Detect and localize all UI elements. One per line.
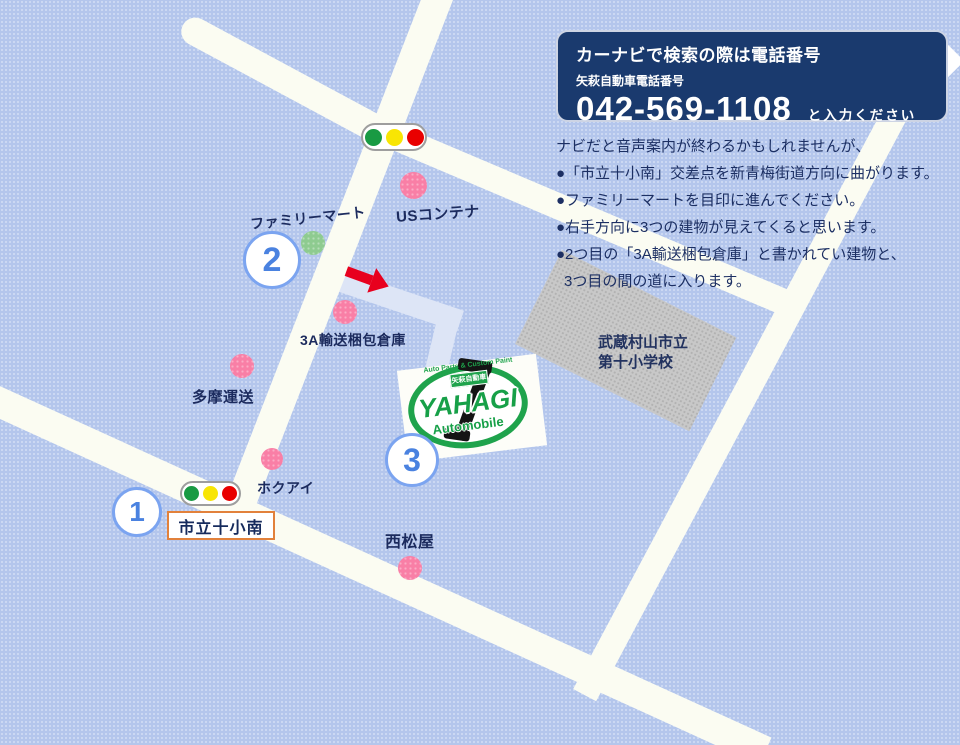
directions-line: ナビだと音声案内が終わるかもしれませんが、: [556, 133, 960, 160]
directions-line: ●右手方向に3つの建物が見えてくると思います。: [556, 214, 960, 241]
phone-suffix: と入力ください: [808, 104, 917, 124]
nishimatsuya-dot: [398, 556, 422, 580]
tama-unso-dot: [230, 354, 254, 378]
school-name-line1: 武蔵村山市立: [598, 333, 688, 353]
familymart-dot: [301, 231, 325, 255]
yellow-light-icon: [386, 129, 403, 146]
directions-text: ナビだと音声案内が終わるかもしれませんが、 ●「市立十小南」交差点を新青梅街道方…: [556, 133, 960, 295]
green-light-icon: [365, 129, 382, 146]
tama-unso-label: 多摩運送: [192, 386, 254, 407]
directions-line: ●2つ目の「3A輸送梱包倉庫」と書かれてい建物と、: [556, 241, 960, 268]
warehouse-3a-label: 3A輸送梱包倉庫: [300, 330, 406, 350]
traffic-light-top: [361, 123, 427, 151]
phone-info-box: カーナビで検索の際は電話番号 矢萩自動車電話番号 042-569-1108 と入…: [556, 30, 948, 122]
phone-box-title: カーナビで検索の際は電話番号: [576, 41, 932, 66]
green-light-icon: [184, 486, 199, 501]
us-container-dot: [400, 172, 427, 199]
traffic-light-bottom: [180, 481, 241, 506]
access-map: 武蔵村山市立 第十小学校 Auto Parts & Custom Paint 矢…: [0, 0, 960, 745]
warehouse-3a-dot: [333, 300, 357, 324]
route-marker-3: 3: [385, 433, 439, 487]
school-name-line2: 第十小学校: [598, 353, 688, 373]
directions-line: ●ファミリーマートを目印に進んでください。: [556, 187, 960, 214]
school-name-label: 武蔵村山市立 第十小学校: [598, 333, 688, 373]
route-marker-2: 2: [243, 231, 301, 289]
hokuai-label: ホクアイ: [257, 478, 314, 498]
red-light-icon: [407, 129, 424, 146]
directions-line: 3つ目の間の道に入ります。: [556, 268, 960, 295]
route-marker-1: 1: [112, 487, 162, 537]
directions-line: ●「市立十小南」交差点を新青梅街道方向に曲がります。: [556, 160, 960, 187]
yellow-light-icon: [203, 486, 218, 501]
phone-box-company: 矢萩自動車電話番号: [576, 72, 932, 89]
route-arrow-shaft: [345, 266, 374, 285]
us-container-label: USコンテナ: [395, 200, 480, 227]
phone-row: 042-569-1108 と入力ください: [576, 90, 932, 128]
intersection-sign: 市立十小南: [167, 511, 275, 540]
phone-number: 042-569-1108: [576, 90, 792, 128]
hokuai-dot: [261, 448, 283, 470]
red-light-icon: [222, 486, 237, 501]
nishimatsuya-label: 西松屋: [385, 528, 435, 552]
